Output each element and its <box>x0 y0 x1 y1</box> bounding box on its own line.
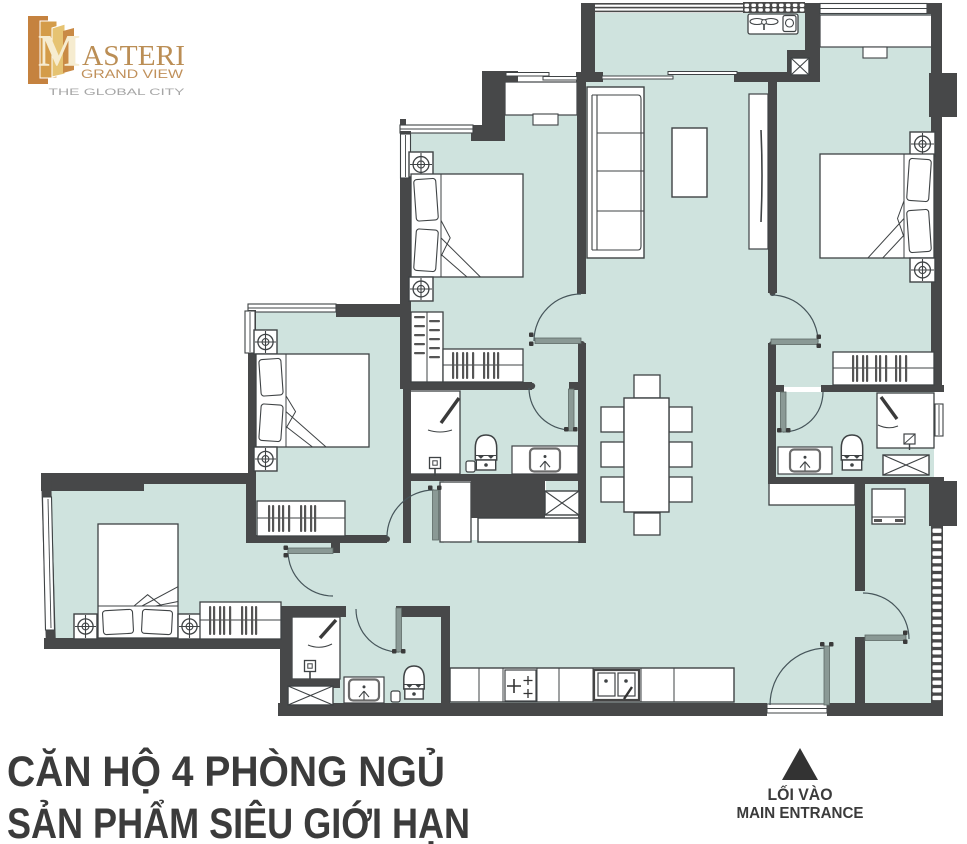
svg-text:THE GLOBAL CITY: THE GLOBAL CITY <box>49 87 185 97</box>
svg-text:SẢN PHẨM SIÊU GIỚI HẠN: SẢN PHẨM SIÊU GIỚI HẠN <box>7 799 470 844</box>
svg-text:MAIN ENTRANCE: MAIN ENTRANCE <box>737 805 864 822</box>
svg-text:M: M <box>38 26 80 76</box>
svg-text:ASTERI: ASTERI <box>82 40 185 72</box>
svg-text:LỐI VÀO: LỐI VÀO <box>768 784 833 804</box>
svg-text:GRAND VIEW: GRAND VIEW <box>81 69 183 81</box>
svg-text:CĂN HỘ 4 PHÒNG NGỦ: CĂN HỘ 4 PHÒNG NGỦ <box>7 747 445 796</box>
